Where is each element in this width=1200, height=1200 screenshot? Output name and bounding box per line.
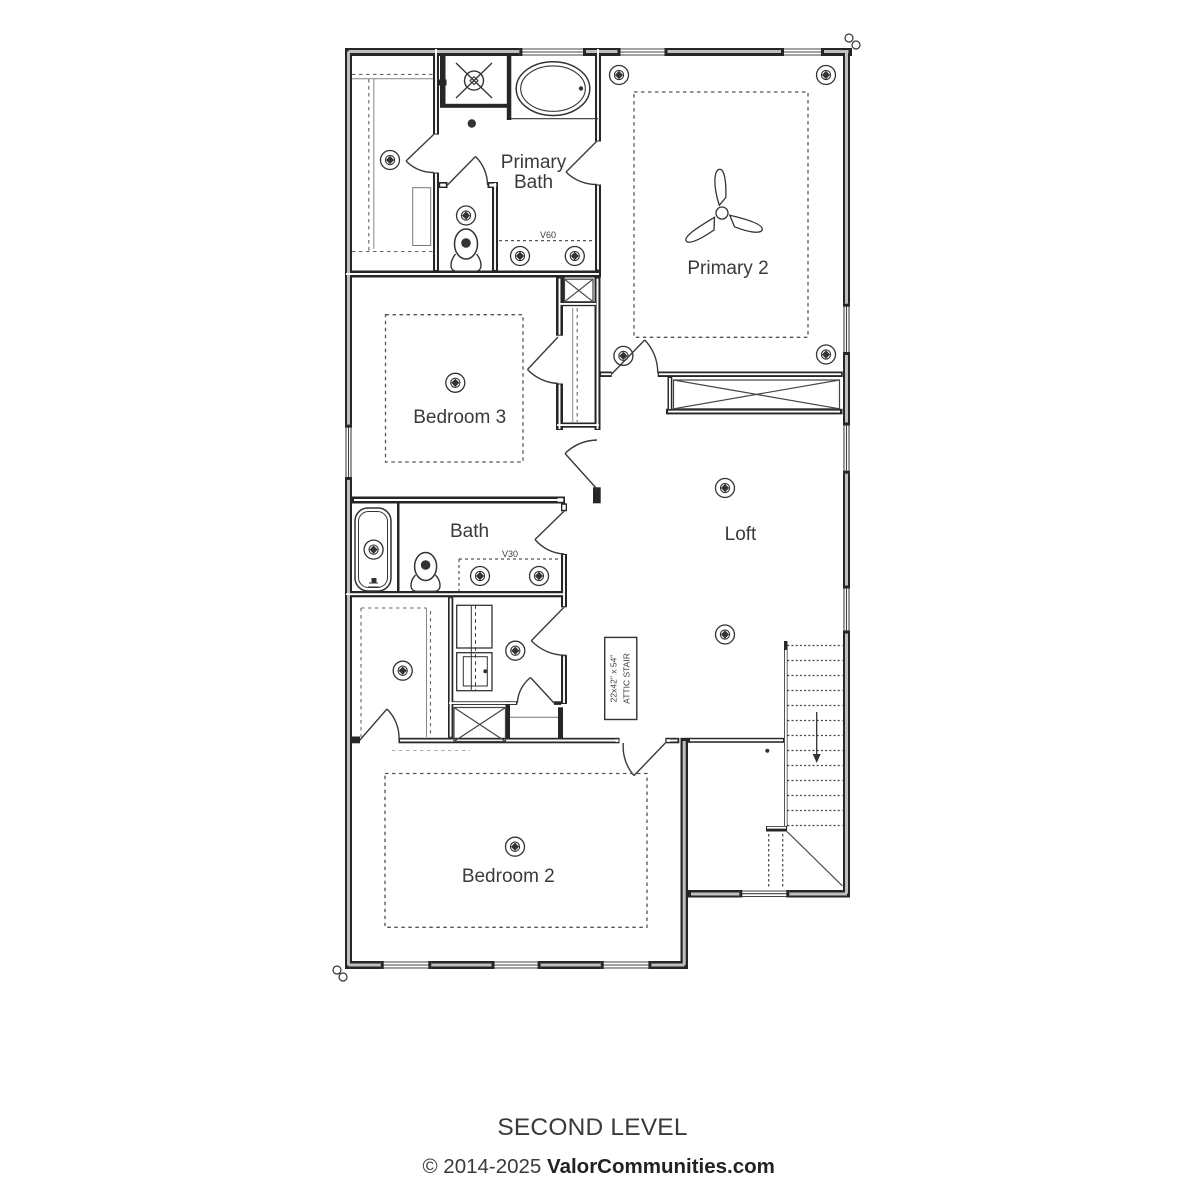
svg-text:Primary: Primary: [501, 152, 567, 173]
svg-text:SECOND LEVEL: SECOND LEVEL: [497, 1114, 687, 1141]
svg-text:Bath: Bath: [514, 172, 553, 193]
svg-text:Primary 2: Primary 2: [687, 258, 768, 279]
svg-text:22x42" x 54": 22x42" x 54": [609, 655, 619, 703]
svg-text:V60: V60: [540, 230, 556, 240]
svg-text:Bath: Bath: [450, 521, 489, 542]
svg-text:Bedroom 2: Bedroom 2: [462, 866, 555, 887]
svg-text:Bedroom 3: Bedroom 3: [413, 407, 506, 428]
svg-text:Loft: Loft: [725, 524, 757, 545]
svg-text:© 2014-2025 ValorCommunities.c: © 2014-2025 ValorCommunities.com: [423, 1155, 775, 1178]
svg-text:ATTIC STAIR: ATTIC STAIR: [622, 653, 632, 704]
svg-text:V30: V30: [502, 549, 518, 559]
